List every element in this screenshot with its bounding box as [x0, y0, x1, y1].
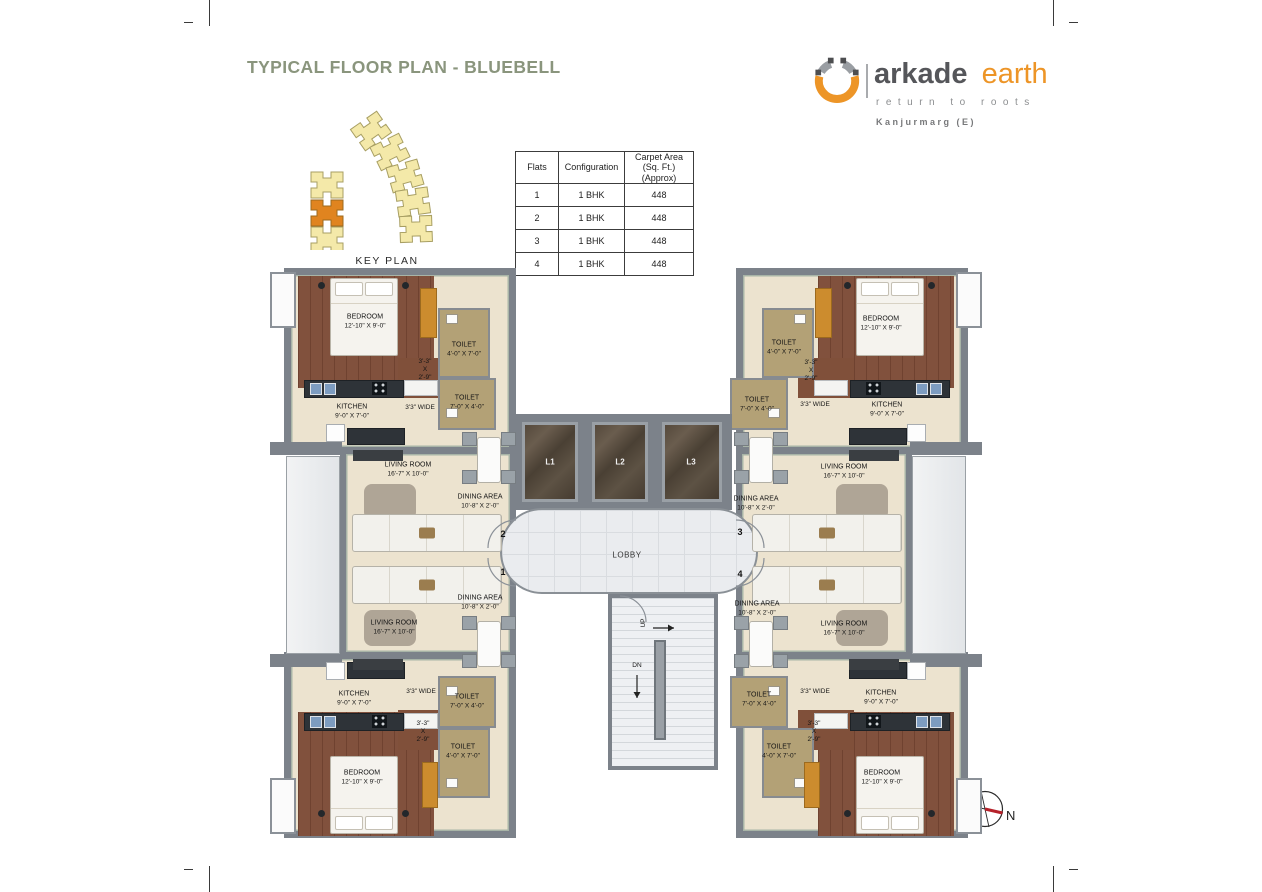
crop-mark [1053, 0, 1054, 26]
room-label-corridor: 3'3" WIDE [800, 401, 830, 409]
room-label-living: LIVING ROOM16'-7" X 10'-0" [371, 620, 418, 637]
flat-number-4: 4 [737, 569, 742, 579]
dining-set-icon [734, 430, 786, 490]
stair-divider-wall [654, 640, 666, 740]
brand-location: Kanjurmarg (E) [876, 117, 976, 127]
table-row: 3 1 BHK 448 [516, 230, 694, 253]
sink-icon [916, 716, 928, 728]
room-label-toilet: TOILET7'-0" X 4'-0" [450, 395, 484, 412]
room-label-dining: DINING AREA10'-8" X 2'-0" [734, 601, 779, 618]
cell-area: 448 [625, 184, 694, 207]
crop-mark [184, 22, 193, 23]
brand-name: arkade earth [874, 60, 1048, 89]
sink-icon [310, 383, 322, 395]
hob-icon [372, 382, 387, 395]
room-label-corridor: 3'3" WIDE [405, 404, 435, 412]
room-label-kitchen: KITCHEN9'-0" X 7'-0" [335, 404, 369, 421]
deck-right [912, 456, 966, 654]
pillow-icon [861, 282, 889, 296]
sink-icon [310, 716, 322, 728]
room-label-toilet: TOILET7'-0" X 4'-0" [742, 692, 776, 709]
flats-table: Flats Configuration Carpet Area (Sq. Ft.… [515, 151, 694, 276]
sofa-icon [752, 566, 902, 604]
pillow-icon [365, 282, 393, 296]
dining-table-icon [477, 437, 501, 483]
kitchen-counter-icon [347, 428, 405, 445]
wardrobe-icon [815, 288, 832, 338]
nightstand-icon [844, 810, 851, 817]
room-label-bedroom: BEDROOM12'-10" X 9'-0" [344, 314, 385, 331]
bed-icon [856, 756, 924, 834]
dining-table-icon [477, 621, 501, 667]
cushion-icon [819, 580, 835, 591]
tv-unit-icon [849, 659, 899, 670]
room-label-toilet: TOILET7'-0" X 4'-0" [450, 694, 484, 711]
logo-divider [866, 64, 868, 98]
lift-label: L1 [545, 458, 554, 467]
pillow-icon [335, 282, 363, 296]
lift-label: L2 [615, 458, 624, 467]
wall [910, 442, 982, 455]
table-row: 2 1 BHK 448 [516, 207, 694, 230]
chair-icon [734, 654, 749, 668]
chair-icon [773, 432, 788, 446]
kitchen-counter-icon [849, 428, 907, 445]
sink-icon [930, 383, 942, 395]
fridge-icon [326, 424, 345, 442]
room-label-corridor: 3'3" WIDE [800, 688, 830, 696]
room-label-kitchen: KITCHEN9'-0" X 7'-0" [337, 691, 371, 708]
floor-plan: BEDROOM12'-10" X 9'-0" 3'-3"X2'-9" TOILE… [270, 262, 982, 844]
key-plan-highlighted-building [311, 200, 343, 226]
chair-icon [773, 616, 788, 630]
crop-mark [1069, 22, 1078, 23]
room-label-dining: DINING AREA10'-8" X 2'-0" [457, 595, 502, 612]
chair-icon [462, 616, 477, 630]
lift-label: L3 [686, 458, 695, 467]
room-label-passage: 3'-3"X2'-9" [805, 359, 818, 383]
pillow-icon [335, 816, 363, 830]
room-label-bedroom: BEDROOM12'-10" X 9'-0" [861, 770, 902, 787]
crop-mark [1053, 866, 1054, 892]
chair-icon [501, 616, 516, 630]
cell-config: 1 BHK [559, 184, 625, 207]
room-label-dining: DINING AREA10'-8" X 2'-0" [733, 496, 778, 513]
fridge-icon [907, 662, 926, 680]
cushion-icon [819, 528, 835, 539]
room-label-passage: 3'-3"X2'-9" [808, 720, 821, 744]
stair-down-label: DN [632, 662, 641, 670]
crop-mark [209, 866, 210, 892]
crop-mark [209, 0, 210, 26]
pillow-icon [891, 282, 919, 296]
chair-icon [773, 654, 788, 668]
room-label-kitchen: KITCHEN9'-0" X 7'-0" [864, 690, 898, 707]
balcony-top-left [270, 272, 296, 328]
cushion-icon [419, 580, 435, 591]
pillow-icon [861, 816, 889, 830]
balcony-bottom-left [270, 778, 296, 834]
sink-icon [916, 383, 928, 395]
hob-icon [372, 715, 387, 728]
key-plan-graphic [295, 108, 445, 250]
sofa-icon [752, 514, 902, 552]
room-label-living: LIVING ROOM16'-7" X 10'-0" [821, 464, 868, 481]
carpet-area-line2: (Sq. Ft.) (Approx) [625, 162, 693, 183]
toilet-fixture-icon [446, 314, 458, 324]
sink-icon [324, 716, 336, 728]
chair-icon [462, 432, 477, 446]
col-header-carpet-area: Carpet Area (Sq. Ft.) (Approx) [625, 152, 694, 184]
cell-flat: 3 [516, 230, 559, 253]
room-label-dining: DINING AREA10'-8" X 2'-0" [457, 494, 502, 511]
chair-icon [462, 654, 477, 668]
sofa-icon [352, 514, 502, 552]
flat-number-1: 1 [500, 567, 505, 577]
chair-icon [773, 470, 788, 484]
nightstand-icon [318, 810, 325, 817]
crop-mark [1069, 869, 1078, 870]
balcony-bottom-right [956, 778, 982, 834]
fridge-icon [907, 424, 926, 442]
wardrobe-icon [420, 288, 437, 338]
brand-primary: arkade [874, 58, 968, 90]
nightstand-icon [318, 282, 325, 289]
wardrobe-icon [804, 762, 820, 808]
balcony-top-right [956, 272, 982, 328]
carpet-area-line1: Carpet Area [625, 152, 693, 162]
chair-icon [501, 432, 516, 446]
cell-config: 1 BHK [559, 230, 625, 253]
brand-tagline: return to roots [876, 97, 1036, 108]
room-label-toilet: TOILET4'-0" X 7'-0" [447, 342, 481, 359]
room-label-toilet: TOILET4'-0" X 7'-0" [767, 340, 801, 357]
room-label-kitchen: KITCHEN9'-0" X 7'-0" [870, 402, 904, 419]
cushion-icon [419, 528, 435, 539]
room-label-bedroom: BEDROOM12'-10" X 9'-0" [860, 316, 901, 333]
dining-set-icon [462, 614, 514, 674]
cell-config: 1 BHK [559, 207, 625, 230]
dining-table-icon [749, 621, 773, 667]
pillow-icon [891, 816, 919, 830]
room-label-toilet: TOILET4'-0" X 7'-0" [762, 744, 796, 761]
room-label-passage: 3'-3"X2'-9" [417, 720, 430, 744]
table-header-row: Flats Configuration Carpet Area (Sq. Ft.… [516, 152, 694, 184]
chair-icon [501, 470, 516, 484]
sink-icon [930, 716, 942, 728]
dining-set-icon [734, 614, 786, 674]
room-label-corridor: 3'3" WIDE [406, 688, 436, 696]
col-header-configuration: Configuration [559, 152, 625, 184]
floor-plan-page: TYPICAL FLOOR PLAN - BLUEBELL arkade ear… [0, 0, 1262, 892]
wardrobe-icon [422, 762, 438, 808]
pillow-icon [365, 816, 393, 830]
cell-flat: 2 [516, 207, 559, 230]
hob-icon [866, 715, 881, 728]
dining-set-icon [462, 430, 514, 490]
table-row: 1 1 BHK 448 [516, 184, 694, 207]
bed-icon [330, 756, 398, 834]
nightstand-icon [928, 282, 935, 289]
tv-unit-icon [353, 659, 403, 670]
sink-icon [324, 383, 336, 395]
room-label-toilet: TOILET4'-0" X 7'-0" [446, 744, 480, 761]
tv-unit-icon [849, 450, 899, 461]
dining-table-icon [749, 437, 773, 483]
deck-left [286, 456, 340, 654]
tv-unit-icon [353, 450, 403, 461]
nightstand-icon [402, 282, 409, 289]
counter-icon [814, 380, 848, 396]
toilet-fixture-icon [794, 314, 806, 324]
compass-north-label: N [1006, 808, 1015, 823]
crop-mark [184, 869, 193, 870]
room-label-living: LIVING ROOM16'-7" X 10'-0" [385, 462, 432, 479]
toilet-fixture-icon [446, 778, 458, 788]
nightstand-icon [844, 282, 851, 289]
cell-area: 448 [625, 207, 694, 230]
nightstand-icon [928, 810, 935, 817]
chair-icon [734, 470, 749, 484]
room-label-bedroom: BEDROOM12'-10" X 9'-0" [341, 770, 382, 787]
chair-icon [462, 470, 477, 484]
lobby-label: LOBBY [612, 551, 641, 560]
room-label-toilet: TOILET7'-0" X 4'-0" [740, 397, 774, 414]
col-header-flats: Flats [516, 152, 559, 184]
chair-icon [734, 616, 749, 630]
counter-icon [404, 380, 438, 396]
fridge-icon [326, 662, 345, 680]
page-title: TYPICAL FLOOR PLAN - BLUEBELL [247, 57, 561, 78]
flat-number-2: 2 [500, 529, 505, 539]
room-label-passage: 3'-3"X2'-9" [419, 358, 432, 382]
stair-up-label: UP [640, 618, 648, 627]
nightstand-icon [402, 810, 409, 817]
room-label-living: LIVING ROOM16'-7" X 10'-0" [821, 621, 868, 638]
hob-icon [866, 382, 881, 395]
cell-area: 448 [625, 230, 694, 253]
chair-icon [501, 654, 516, 668]
arkade-earth-logo-icon [812, 56, 862, 106]
wall [270, 442, 342, 455]
flat-number-3: 3 [737, 527, 742, 537]
brand-secondary: earth [982, 58, 1048, 90]
cell-flat: 1 [516, 184, 559, 207]
chair-icon [734, 432, 749, 446]
